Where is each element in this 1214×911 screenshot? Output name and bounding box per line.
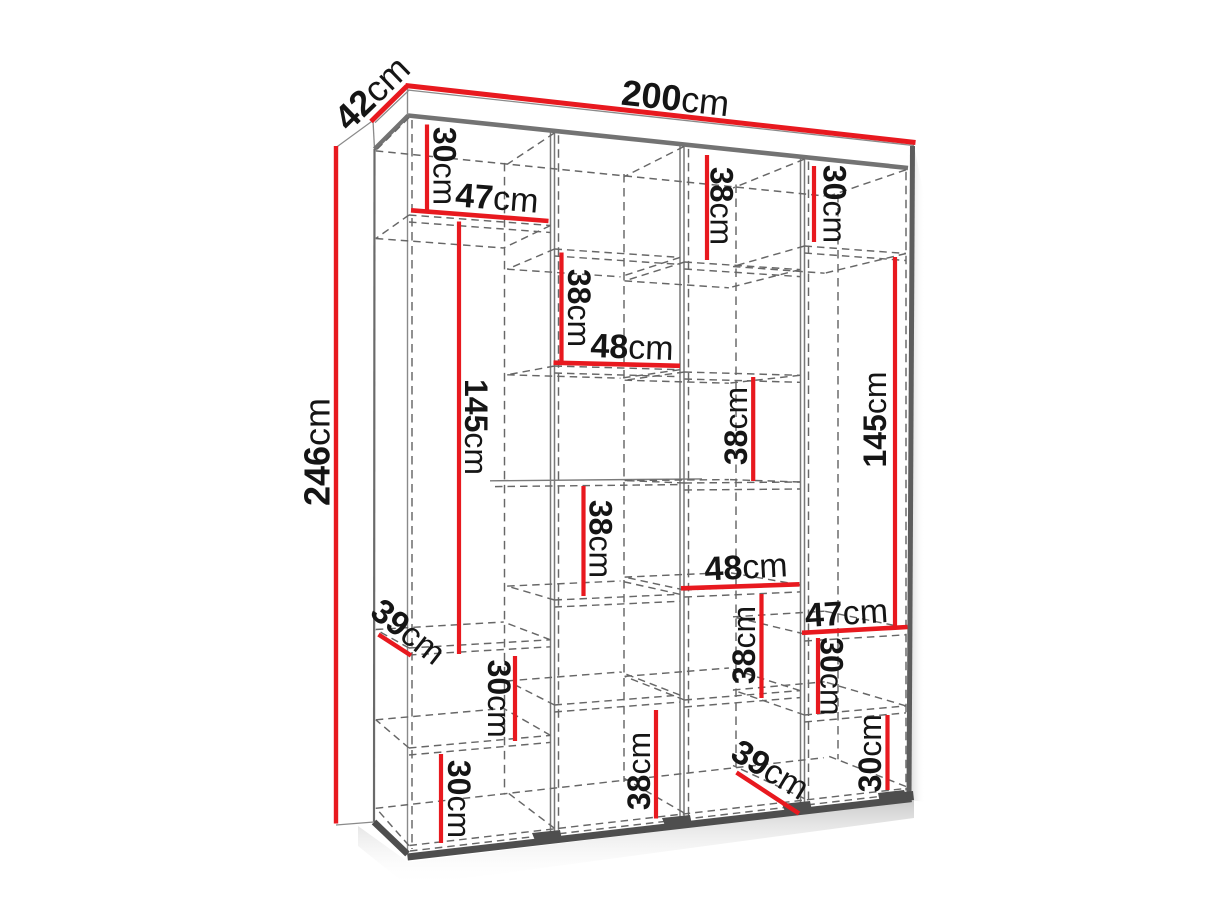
svg-text:38cm: 38cm <box>621 732 657 810</box>
svg-text:246cm: 246cm <box>296 398 337 506</box>
svg-text:48cm: 48cm <box>703 546 788 588</box>
svg-text:38cm: 38cm <box>718 387 754 465</box>
svg-text:30cm: 30cm <box>441 760 477 838</box>
svg-text:38cm: 38cm <box>583 500 619 578</box>
svg-text:30cm: 30cm <box>814 637 850 715</box>
svg-text:30cm: 30cm <box>481 660 517 738</box>
svg-text:30cm: 30cm <box>852 714 888 792</box>
svg-text:145cm: 145cm <box>458 379 494 475</box>
svg-text:38cm: 38cm <box>704 167 740 245</box>
svg-text:47cm: 47cm <box>454 176 540 220</box>
svg-text:30cm: 30cm <box>817 165 853 243</box>
svg-text:48cm: 48cm <box>590 327 674 368</box>
svg-text:145cm: 145cm <box>857 371 893 467</box>
svg-text:38cm: 38cm <box>726 606 762 684</box>
svg-text:47cm: 47cm <box>804 592 889 635</box>
